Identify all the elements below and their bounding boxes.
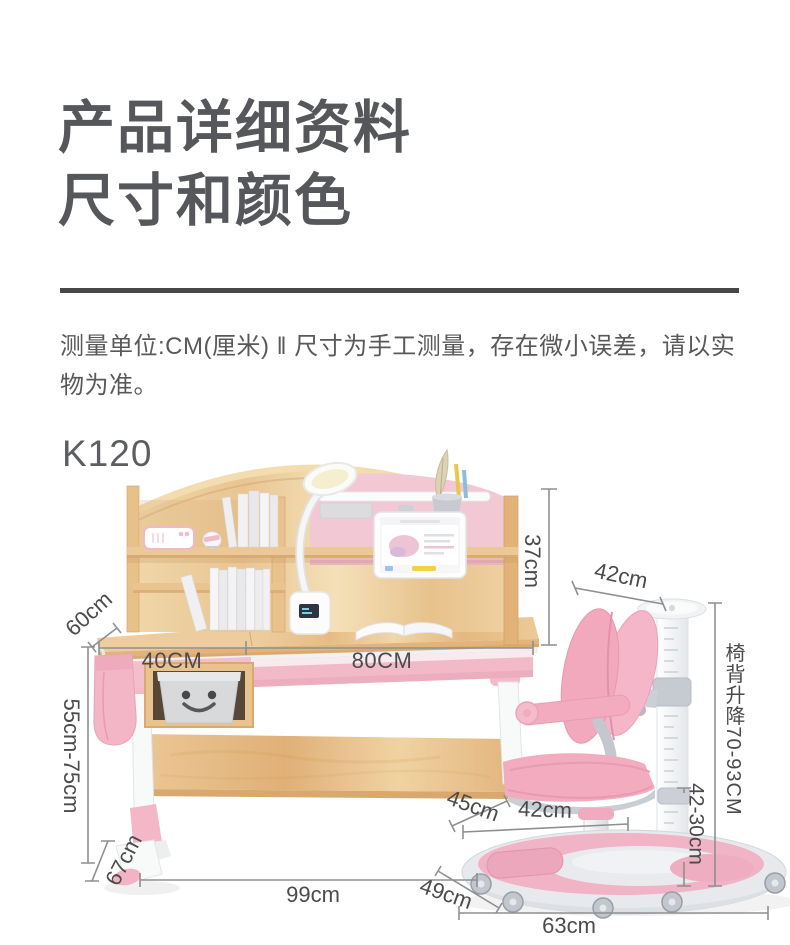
page-title: 产品详细资料 尺寸和颜色 xyxy=(58,92,412,238)
page-title-line1: 产品详细资料 xyxy=(58,92,412,165)
product-detail-page: 产品详细资料 尺寸和颜色 测量单位:CM(厘米) ‖ 尺寸为手工测量，存在微小误… xyxy=(0,0,790,945)
hanging-bag xyxy=(94,648,136,745)
hutch-tray xyxy=(320,503,372,518)
dim-right-section-width-label: 80CM xyxy=(352,650,413,672)
chair-backrest xyxy=(553,605,669,748)
section-divider xyxy=(60,288,739,293)
dim-hutch-height-label: 37cm xyxy=(521,534,543,588)
dim-desk-width-label: 99cm xyxy=(286,884,340,906)
dim-base-width-label: 63cm xyxy=(542,915,596,937)
dim-chair-back-lift-label: 椅背升降70-93CM xyxy=(723,642,743,815)
toy-radio xyxy=(144,527,194,549)
dim-left-section-width-label: 40CM xyxy=(142,650,203,672)
page-title-line2: 尺寸和颜色 xyxy=(58,165,412,238)
dim-seat-width-label: 42cm xyxy=(518,798,573,822)
tablet xyxy=(374,505,466,578)
dim-desk-height-label: 55cm-75cm xyxy=(60,699,82,814)
dim-seat-lift-label: 42-30cm xyxy=(686,783,707,865)
small-toy xyxy=(203,532,221,548)
measurement-note: 测量单位:CM(厘米) ‖ 尺寸为手工测量，存在微小误差，请以实物为准。 xyxy=(60,327,750,405)
